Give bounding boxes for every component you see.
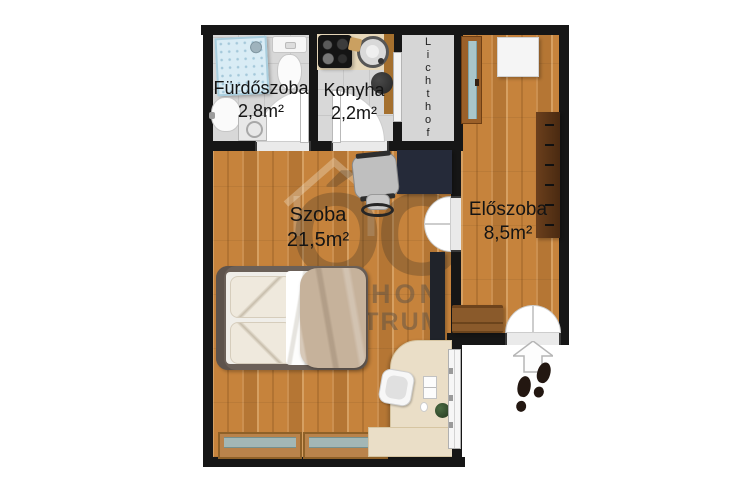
room-name: Szoba: [258, 203, 378, 228]
shower-head-icon: [250, 41, 263, 54]
wall-wet-divider-a: [203, 141, 255, 151]
hanger-icon: [545, 164, 554, 166]
wall-right: [559, 25, 569, 345]
bed-duvet: [300, 268, 366, 368]
wall-room-hallway-a: [451, 141, 461, 196]
desk-dark: [397, 150, 452, 194]
kitchen-label: Konyha 2,2m²: [311, 79, 397, 125]
laptop: [423, 376, 437, 399]
office-chair-seat: [351, 152, 400, 200]
room-area: 21,5m²: [258, 228, 378, 253]
window-handle-icon: [449, 395, 453, 401]
door-handle-icon: [475, 79, 479, 86]
pillow: [230, 322, 292, 364]
hallway-label: Előszoba 8,5m²: [453, 198, 563, 246]
footprint-left: [511, 375, 536, 418]
hanger-icon: [545, 184, 554, 186]
window-box: [218, 432, 302, 459]
window-handle-icon: [449, 368, 453, 374]
hanger-icon: [545, 124, 554, 126]
window-mullion: [454, 350, 455, 448]
stove: [318, 35, 352, 68]
room-label: Szoba 21,5m²: [258, 203, 378, 253]
window-glass: [224, 437, 296, 448]
desk-chair-cushion: [384, 374, 409, 400]
bathroom-name: Fürdőszoba: [210, 77, 312, 100]
hanger-icon: [545, 144, 554, 146]
bathroom-label: Fürdőszoba 2,8m²: [210, 77, 312, 123]
kitchen-area: 2,2m²: [311, 102, 397, 125]
mouse: [420, 402, 428, 412]
lightwell-label-wrap: Lichthof: [402, 38, 454, 138]
lightwell-label: Lichthof: [422, 36, 434, 140]
hallway-area: 8,5m²: [453, 222, 563, 246]
toilet-flush-button: [285, 42, 296, 49]
room-side-window: [448, 349, 461, 449]
footprints-icon: [512, 362, 557, 420]
open-glass-door: [461, 36, 482, 124]
hallway-name: Előszoba: [453, 198, 563, 222]
desk-chair: [377, 367, 416, 407]
corner-desk-return: [368, 427, 452, 457]
kitchen-name: Konyha: [311, 79, 397, 102]
tv-panel: [430, 252, 445, 344]
pillow: [230, 276, 292, 318]
window-handle-icon: [449, 422, 453, 428]
bathroom-area: 2,8m²: [210, 100, 312, 123]
kitchen-sink-basin: [366, 45, 379, 58]
shoe-bench: [452, 305, 503, 333]
toilet-tank: [272, 36, 307, 53]
hall-cabinet: [497, 37, 539, 77]
floorplan-canvas: ÓC OTTHON CENTRUM: [0, 0, 750, 500]
laptop-hinge: [424, 387, 436, 388]
washer-drum-icon: [246, 121, 263, 138]
kitchen-faucet-icon: [378, 58, 384, 64]
